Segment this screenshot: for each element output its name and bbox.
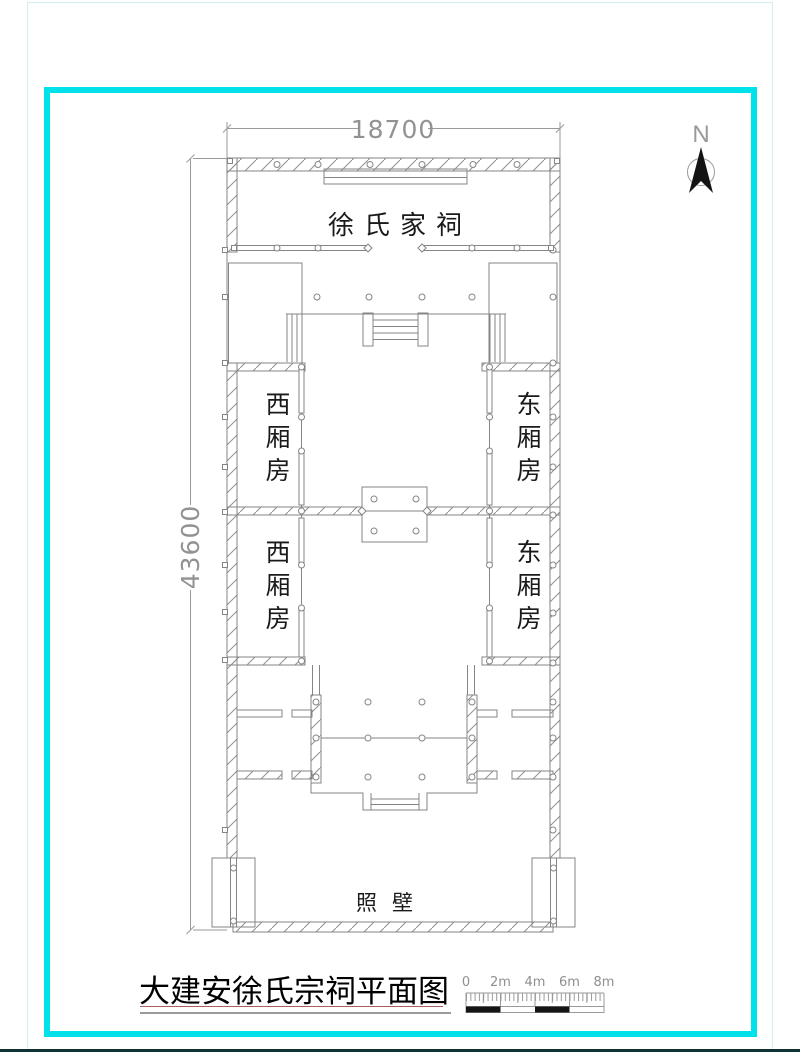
drawing-sheet: 18700 43600 N 徐氏家祠 西厢房 西厢房 东厢房 东厢房 照壁 大建… bbox=[0, 0, 800, 1056]
gate-bench-east-2 bbox=[477, 710, 497, 717]
middle-wall-west bbox=[227, 507, 362, 515]
window-panel bbox=[487, 368, 492, 413]
east-wall-lower bbox=[550, 363, 560, 923]
east-side-steps bbox=[490, 314, 505, 362]
gate-bench-west bbox=[237, 710, 282, 717]
west-wall-hall bbox=[227, 158, 237, 252]
west-wall-lower bbox=[227, 363, 237, 923]
scale-bar-ruler bbox=[466, 993, 604, 1013]
central-steps bbox=[373, 320, 418, 340]
east-wing-lower-label: 东厢房 bbox=[508, 539, 544, 638]
north-label: N bbox=[685, 121, 717, 149]
gate-bench-west-2 bbox=[292, 710, 312, 717]
east-wing-bottom-wall bbox=[482, 657, 560, 665]
west-side-steps bbox=[287, 314, 302, 362]
window-panel bbox=[299, 518, 304, 563]
west-wing-lower-label: 西厢房 bbox=[257, 539, 293, 638]
north-arrow-icon bbox=[688, 147, 715, 193]
gate-bench-east bbox=[512, 710, 553, 717]
west-wing-upper-label: 西厢房 bbox=[257, 391, 293, 490]
window-panel bbox=[487, 453, 492, 505]
west-wing-bottom-wall bbox=[227, 657, 305, 665]
gate-screen-east-2 bbox=[477, 771, 497, 779]
east-wing-top-wall bbox=[482, 363, 560, 371]
scale-label-6m: 6m bbox=[555, 975, 585, 990]
main-hall-label: 徐氏家祠 bbox=[300, 205, 490, 242]
dimension-top-value: 18700 bbox=[343, 115, 443, 144]
gate-hall bbox=[237, 665, 553, 810]
east-platform bbox=[489, 263, 557, 363]
screen-wall-label: 照壁 bbox=[312, 887, 457, 917]
central-steps-post bbox=[363, 313, 373, 346]
east-wing-upper-label: 东厢房 bbox=[508, 391, 544, 490]
porch-area bbox=[227, 252, 560, 363]
window-panel bbox=[487, 610, 492, 657]
gate-screen-east bbox=[512, 771, 553, 779]
gate-entrance-steps bbox=[371, 793, 419, 810]
window-panel bbox=[299, 368, 304, 413]
scale-label-8m: 8m bbox=[589, 975, 619, 990]
scale-label-2m: 2m bbox=[486, 975, 516, 990]
gate-south-outline bbox=[311, 783, 477, 810]
drawing-title: 大建安徐氏宗祠平面图 bbox=[139, 966, 449, 1011]
gate-screen-west bbox=[237, 771, 282, 779]
west-platform bbox=[229, 263, 303, 363]
window-panel bbox=[299, 453, 304, 505]
gate-screen-west-2 bbox=[292, 771, 312, 779]
dimension-left-value: 43600 bbox=[176, 497, 206, 597]
title-underline-red bbox=[140, 1006, 443, 1007]
title-underline-gray bbox=[140, 1012, 451, 1014]
scale-label-0: 0 bbox=[451, 975, 481, 990]
west-wing-top-wall bbox=[227, 363, 305, 371]
scale-label-4m: 4m bbox=[520, 975, 550, 990]
window-panel bbox=[487, 518, 492, 563]
middle-wall-east bbox=[427, 507, 560, 515]
window-panel bbox=[299, 610, 304, 657]
central-steps-post bbox=[418, 313, 428, 346]
hall-front-wall bbox=[234, 246, 553, 251]
screen-wall-band bbox=[233, 922, 553, 932]
east-wall-hall bbox=[550, 158, 560, 252]
